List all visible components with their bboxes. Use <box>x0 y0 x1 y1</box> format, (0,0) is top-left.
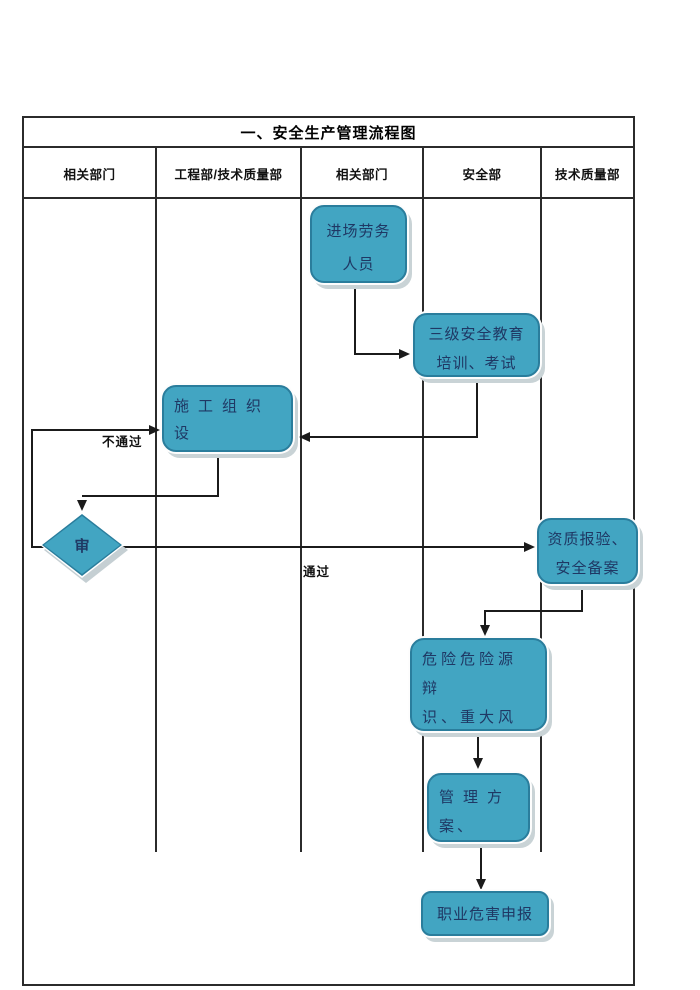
connector-line <box>354 285 356 355</box>
node-text-line: 管理方 <box>429 783 528 812</box>
connector-line <box>217 457 219 497</box>
arrow-down-icon <box>476 879 486 890</box>
connector-line <box>484 610 486 626</box>
node-text-line: 识、重大风险 <box>412 703 545 731</box>
column-header-related-dept-1: 相关部门 <box>24 149 155 197</box>
arrow-down-icon <box>77 500 87 511</box>
node-text-line: 进场劳务 <box>312 215 405 248</box>
node-text-line: 三级安全教育 <box>415 320 538 349</box>
node-text-line: 培训、考试 <box>415 349 538 377</box>
node-text-line: 安全备案 <box>539 554 636 583</box>
review-decision-diamond: 审 <box>40 512 124 578</box>
arrow-right-icon <box>524 542 535 552</box>
page-title: 一、安全生产管理流程图 <box>24 118 633 146</box>
table-border-left <box>22 116 24 986</box>
column-header-tech-quality-dept: 技术质量部 <box>542 149 633 197</box>
node-text-line: 职业危害申报 <box>437 903 533 924</box>
safety-education-node: 三级安全教育 培训、考试 <box>413 313 540 377</box>
connector-line <box>310 436 478 438</box>
connector-line <box>477 733 479 759</box>
column-header-safety-dept: 安全部 <box>424 149 540 197</box>
column-divider-1 <box>155 146 157 852</box>
management-plan-node: 管理方 案、 <box>427 773 530 842</box>
qualification-filing-node: 资质报验、 安全备案 <box>537 518 638 584</box>
arrow-down-icon <box>473 758 483 769</box>
column-divider-3 <box>422 146 424 852</box>
node-text-line: 人员 <box>312 248 405 281</box>
header-row-divider <box>22 197 635 199</box>
column-header-related-dept-2: 相关部门 <box>302 149 422 197</box>
node-text-line: 资质报验、 <box>539 525 636 554</box>
flowchart-page: 一、安全生产管理流程图 相关部门 工程部/技术质量部 相关部门 安全部 技术质量… <box>0 0 700 990</box>
connector-line <box>480 844 482 880</box>
hazard-identification-node: 危险危险源辩 识、重大风险 清单 <box>410 638 547 731</box>
table-border-bottom <box>22 984 635 986</box>
node-text-line: 案、 <box>429 812 528 841</box>
column-header-engineering-dept: 工程部/技术质量部 <box>157 149 300 197</box>
edge-label-pass: 通过 <box>303 561 330 580</box>
column-divider-4 <box>540 146 542 852</box>
arrow-left-icon <box>299 432 310 442</box>
connector-line <box>82 495 219 497</box>
construction-design-node: 施工组织设 计、安全专项 方案 <box>162 385 293 452</box>
node-text-line: 危险危险源辩 <box>412 645 545 703</box>
entry-labor-node: 进场劳务 人员 <box>310 205 407 283</box>
connector-line <box>354 353 401 355</box>
connector-line <box>581 587 583 612</box>
title-row-divider <box>22 146 635 148</box>
arrow-down-icon <box>480 625 490 636</box>
node-text-line: 施工组织设 <box>164 393 291 447</box>
node-text-line: 计、安全专项 <box>164 447 291 452</box>
connector-line <box>31 429 33 548</box>
connector-line <box>484 610 583 612</box>
arrow-right-icon <box>149 425 160 435</box>
edge-label-fail: 不通过 <box>102 431 143 450</box>
connector-line <box>122 546 525 548</box>
arrow-right-icon <box>399 349 410 359</box>
column-divider-2 <box>300 146 302 852</box>
diamond-label: 审 <box>40 512 124 578</box>
connector-line <box>476 381 478 437</box>
occupational-hazard-node: 职业危害申报 <box>421 891 549 936</box>
